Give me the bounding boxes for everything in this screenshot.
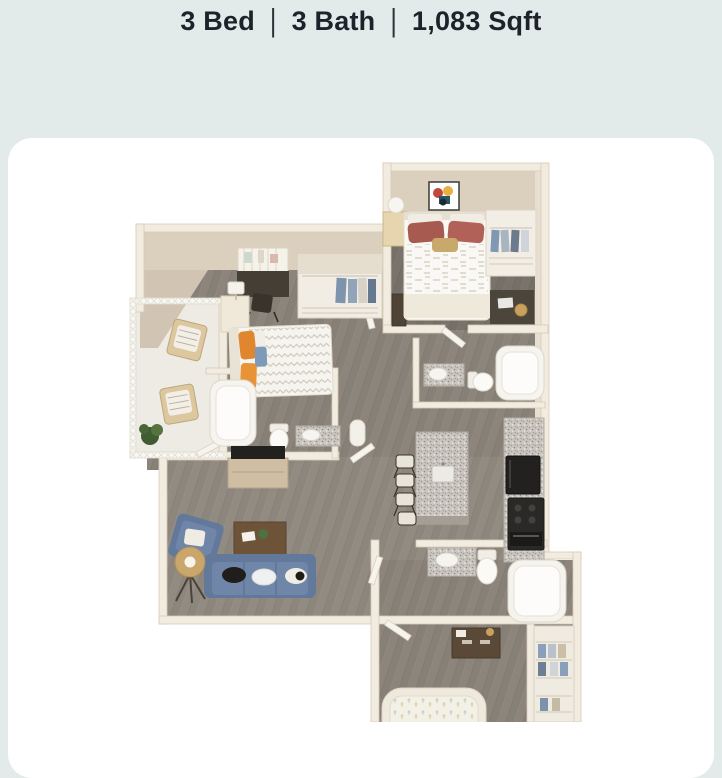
patio-chair-2 (159, 383, 199, 424)
toilet (468, 372, 493, 391)
tv-console (228, 446, 288, 488)
coffee-table (234, 522, 286, 558)
closet-2 (298, 254, 382, 318)
floor-plan-image (8, 138, 714, 722)
bathtub (210, 380, 256, 446)
desk-1 (490, 290, 534, 324)
dresser (452, 628, 500, 658)
island (416, 432, 468, 524)
vanity (296, 426, 340, 446)
wall-art (429, 182, 459, 210)
stat-separator: | (270, 3, 277, 39)
sqft-value: 1,083 Sqft (412, 6, 542, 37)
bed-1 (404, 212, 490, 320)
page: { "header": { "stats": [ {"label": "3 Be… (0, 0, 722, 722)
bed-3 (382, 688, 486, 722)
unit-stats-header: 3 Bed | 3 Bath | 1,083 Sqft (0, 0, 722, 42)
vanity (428, 548, 476, 576)
floor-plan-card (8, 138, 714, 778)
bath-count: 3 Bath (292, 6, 376, 37)
closet-1 (486, 210, 536, 276)
hamper (350, 420, 365, 446)
closet-3 (534, 626, 574, 722)
refrigerator (506, 456, 540, 494)
toilet (477, 550, 497, 584)
vanity (424, 364, 464, 386)
bathtub (508, 560, 566, 622)
bathtub (496, 346, 544, 400)
wall-shelf (238, 248, 288, 272)
sofa (204, 554, 316, 598)
bed-count: 3 Bed (180, 6, 255, 37)
stat-separator: | (390, 3, 397, 39)
stove (508, 498, 544, 550)
